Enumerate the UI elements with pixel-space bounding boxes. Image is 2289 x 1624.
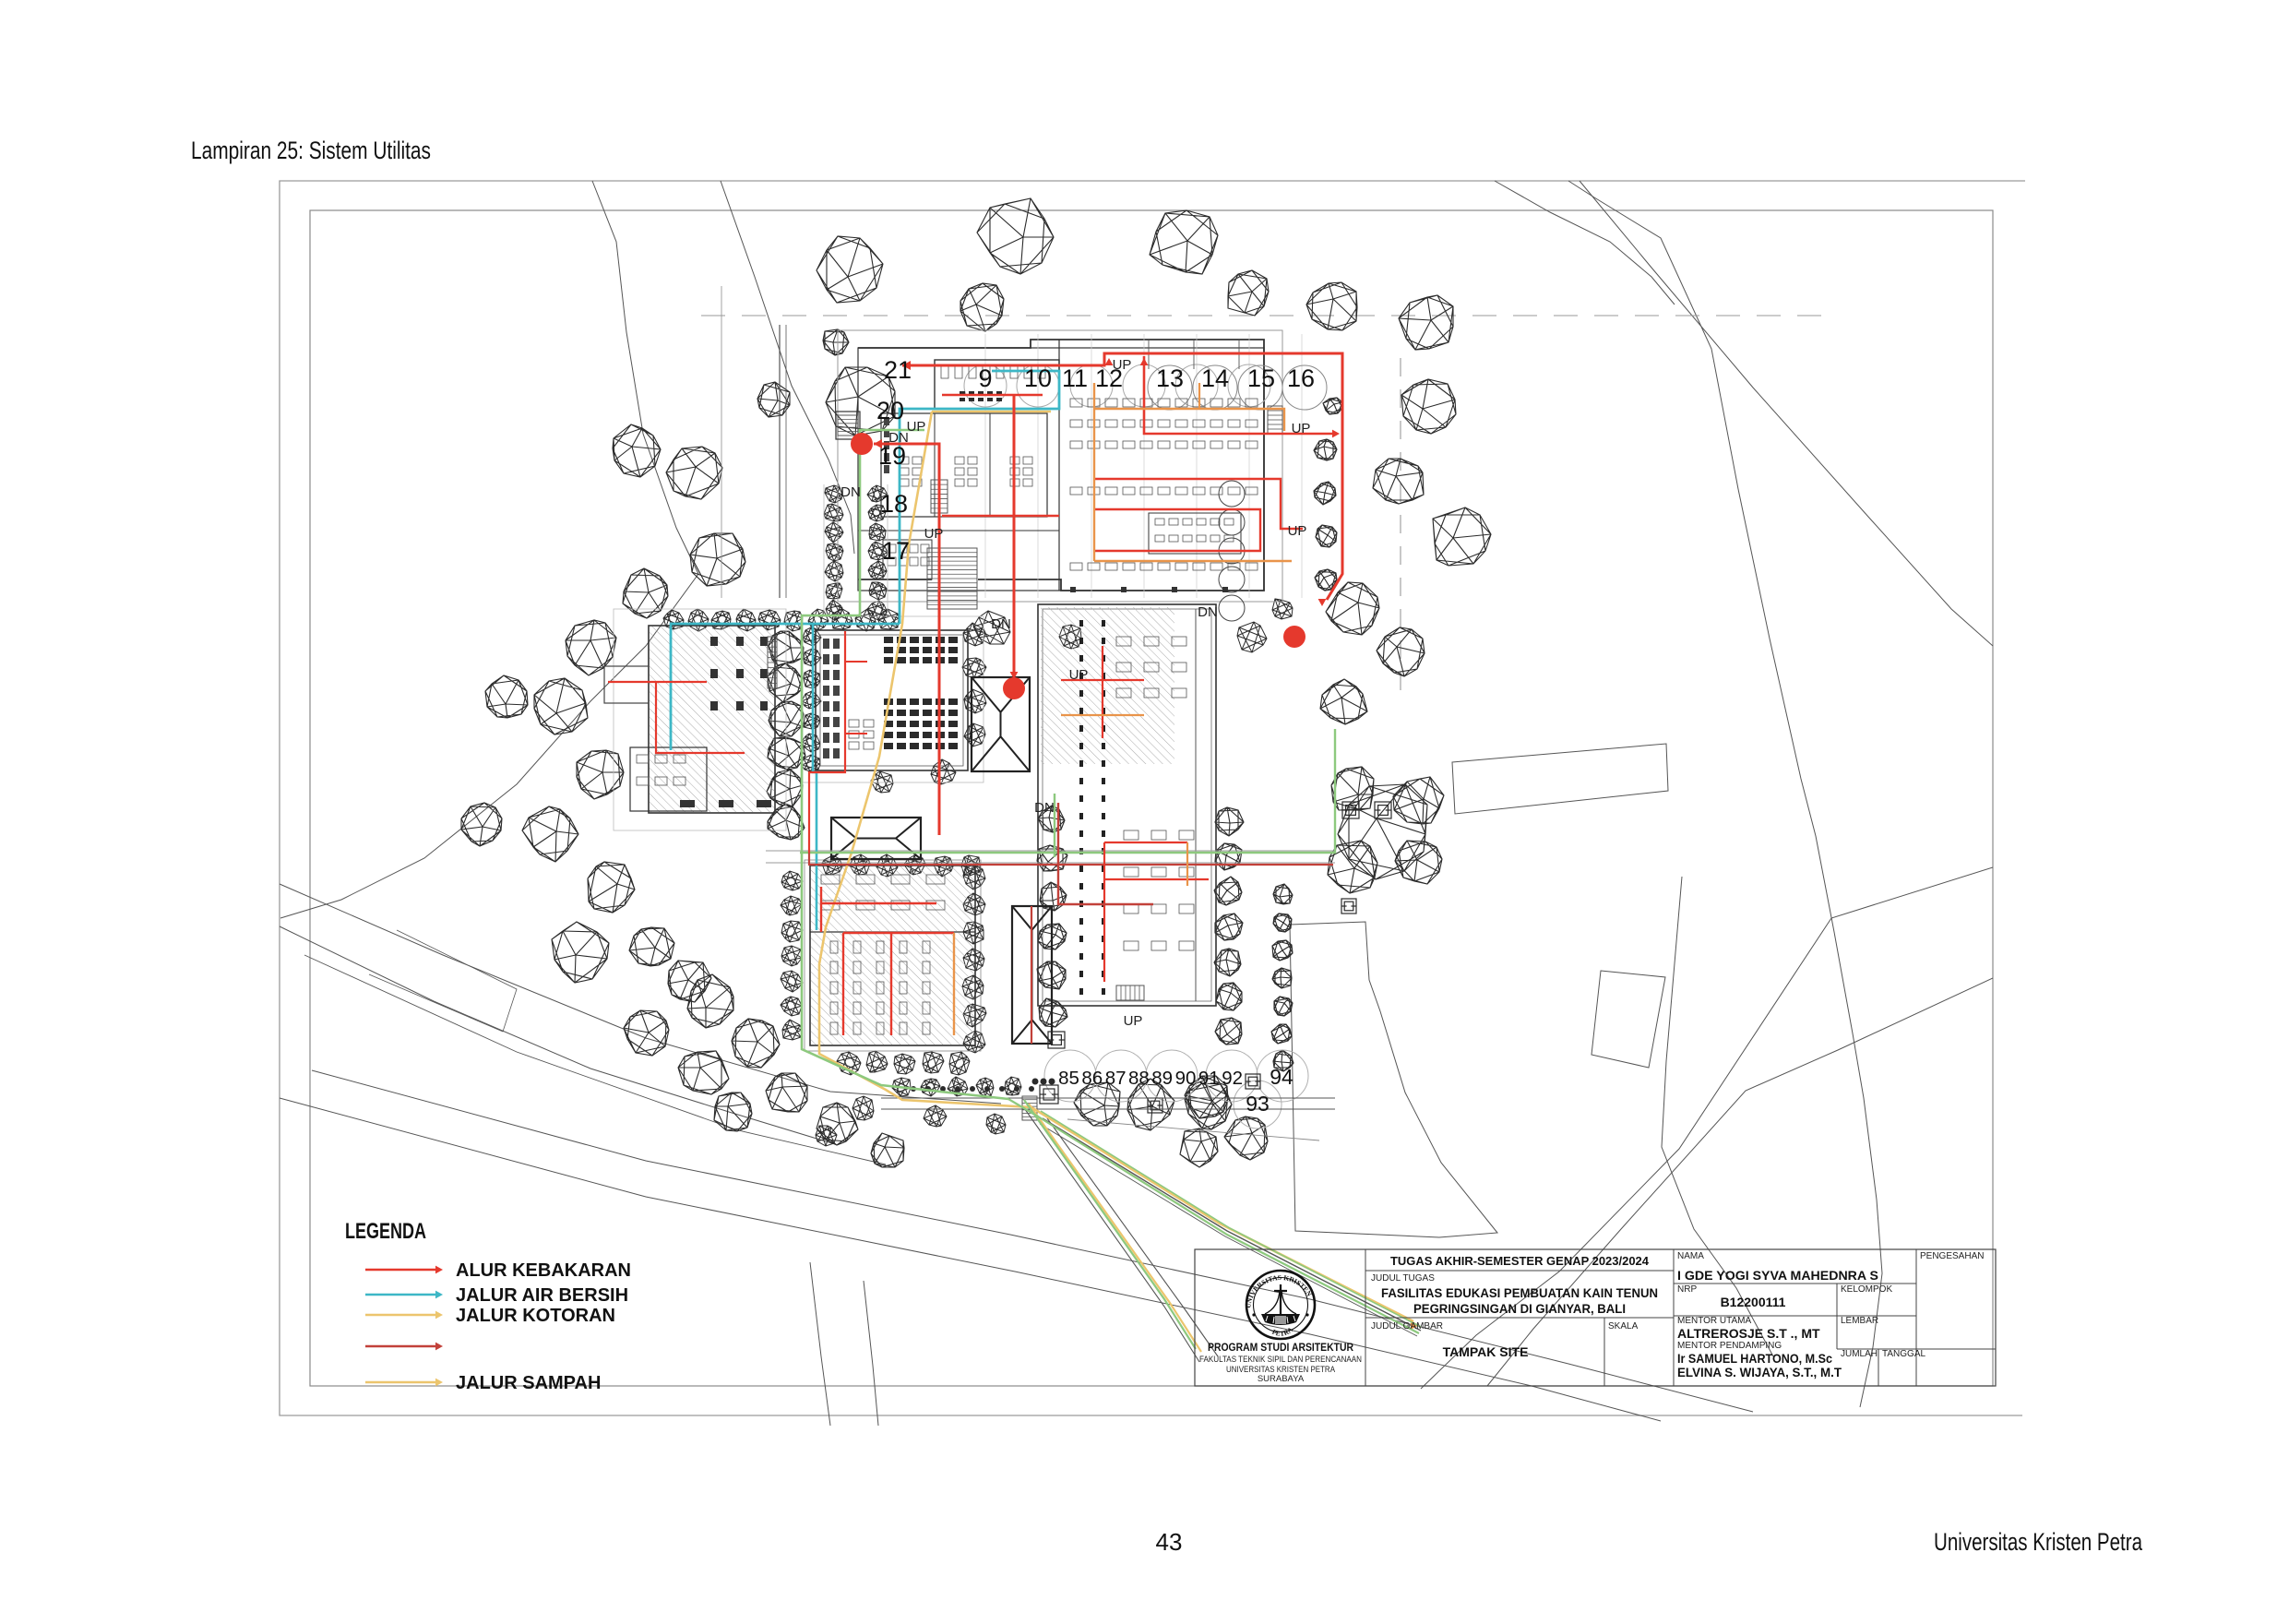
svg-text:DN: DN (888, 430, 909, 446)
svg-text:ELVINA S. WIJAYA, S.T., M.T: ELVINA S. WIJAYA, S.T., M.T (1677, 1365, 1842, 1379)
svg-text:Ir SAMUEL HARTONO, M.Sc: Ir SAMUEL HARTONO, M.Sc (1677, 1351, 1832, 1366)
svg-text:93: 93 (1246, 1092, 1270, 1116)
svg-text:UP: UP (1113, 357, 1132, 373)
svg-text:DN: DN (1034, 800, 1055, 816)
svg-text:43: 43 (1156, 1528, 1183, 1556)
svg-text:MENTOR UTAMA: MENTOR UTAMA (1677, 1316, 1752, 1326)
svg-text:MENTOR PENDAMPING: MENTOR PENDAMPING (1677, 1341, 1782, 1351)
svg-text:92: 92 (1222, 1068, 1243, 1089)
svg-text:PENGESAHAN: PENGESAHAN (1920, 1251, 1984, 1261)
svg-text:13: 13 (1156, 364, 1184, 392)
svg-text:91: 91 (1198, 1068, 1220, 1089)
svg-text:ALUR KEBAKARAN: ALUR KEBAKARAN (456, 1260, 631, 1281)
svg-text:DN: DN (840, 484, 861, 500)
svg-text:UP: UP (907, 419, 926, 435)
svg-text:9: 9 (978, 364, 992, 392)
svg-text:DN: DN (1198, 604, 1218, 620)
svg-text:Lampiran 25: Sistem Utilitas: Lampiran 25: Sistem Utilitas (191, 137, 431, 164)
svg-text:JALUR SAMPAH: JALUR SAMPAH (456, 1373, 601, 1393)
svg-text:DN: DN (991, 616, 1011, 632)
svg-text:SURABAYA: SURABAYA (1258, 1374, 1305, 1384)
svg-text:FAKULTAS TEKNIK SIPIL DAN PERE: FAKULTAS TEKNIK SIPIL DAN PERENCANAAN (1199, 1355, 1362, 1365)
svg-text:SKALA: SKALA (1608, 1321, 1639, 1331)
svg-text:PROGRAM STUDI ARSITEKTUR: PROGRAM STUDI ARSITEKTUR (1208, 1341, 1353, 1354)
svg-text:18: 18 (880, 490, 908, 518)
svg-text:UP: UP (1292, 421, 1311, 436)
svg-text:89: 89 (1151, 1068, 1173, 1089)
svg-text:88: 88 (1128, 1068, 1150, 1089)
svg-text:11: 11 (1062, 364, 1088, 392)
svg-text:94: 94 (1270, 1065, 1294, 1089)
svg-text:UP: UP (924, 526, 944, 542)
svg-text:ALTREROSJE S.T ., MT: ALTREROSJE S.T ., MT (1677, 1326, 1820, 1341)
svg-text:KELOMPOK: KELOMPOK (1841, 1284, 1892, 1295)
svg-text:17: 17 (882, 537, 910, 565)
svg-text:20: 20 (876, 397, 904, 424)
svg-text:87: 87 (1105, 1068, 1127, 1089)
svg-text:90: 90 (1175, 1068, 1197, 1089)
svg-text:21: 21 (884, 356, 912, 384)
svg-text:UP: UP (1124, 1013, 1143, 1029)
svg-text:JUDUL GAMBAR: JUDUL GAMBAR (1371, 1321, 1443, 1331)
svg-text:16: 16 (1287, 364, 1315, 392)
svg-text:TANGGAL: TANGGAL (1882, 1349, 1925, 1359)
svg-text:14: 14 (1201, 364, 1229, 392)
svg-text:LEMBAR: LEMBAR (1841, 1316, 1878, 1326)
svg-text:JALUR AIR BERSIH: JALUR AIR BERSIH (456, 1285, 628, 1306)
svg-text:86: 86 (1081, 1068, 1103, 1089)
svg-text:FASILITAS EDUKASI PEMBUATAN KA: FASILITAS EDUKASI PEMBUATAN KAIN TENUN (1381, 1286, 1658, 1300)
svg-text:UP: UP (1288, 523, 1307, 539)
svg-text:85: 85 (1058, 1068, 1079, 1089)
svg-text:PEGRINGSINGAN DI GIANYAR, BALI: PEGRINGSINGAN DI GIANYAR, BALI (1413, 1302, 1626, 1316)
svg-text:NAMA: NAMA (1677, 1251, 1704, 1261)
svg-text:I GDE YOGI SYVA MAHEDNRA S: I GDE YOGI SYVA MAHEDNRA S (1677, 1268, 1878, 1283)
svg-text:UP: UP (1069, 667, 1089, 683)
svg-text:JUMLAH: JUMLAH (1841, 1349, 1878, 1359)
svg-text:JALUR KOTORAN: JALUR KOTORAN (456, 1306, 615, 1326)
svg-text:LEGENDA: LEGENDA (345, 1219, 426, 1244)
svg-text:NRP: NRP (1677, 1284, 1697, 1295)
svg-text:JUDUL TUGAS: JUDUL TUGAS (1371, 1273, 1435, 1284)
svg-text:15: 15 (1247, 364, 1275, 392)
svg-text:TAMPAK SITE: TAMPAK SITE (1443, 1344, 1529, 1359)
svg-text:10: 10 (1024, 364, 1052, 392)
svg-text:19: 19 (878, 442, 906, 470)
svg-text:Universitas Kristen Petra: Universitas Kristen Petra (1934, 1528, 2143, 1556)
svg-text:B12200111: B12200111 (1721, 1295, 1786, 1309)
svg-text:TUGAS AKHIR-SEMESTER GENAP 202: TUGAS AKHIR-SEMESTER GENAP 2023/2024 (1390, 1254, 1650, 1268)
